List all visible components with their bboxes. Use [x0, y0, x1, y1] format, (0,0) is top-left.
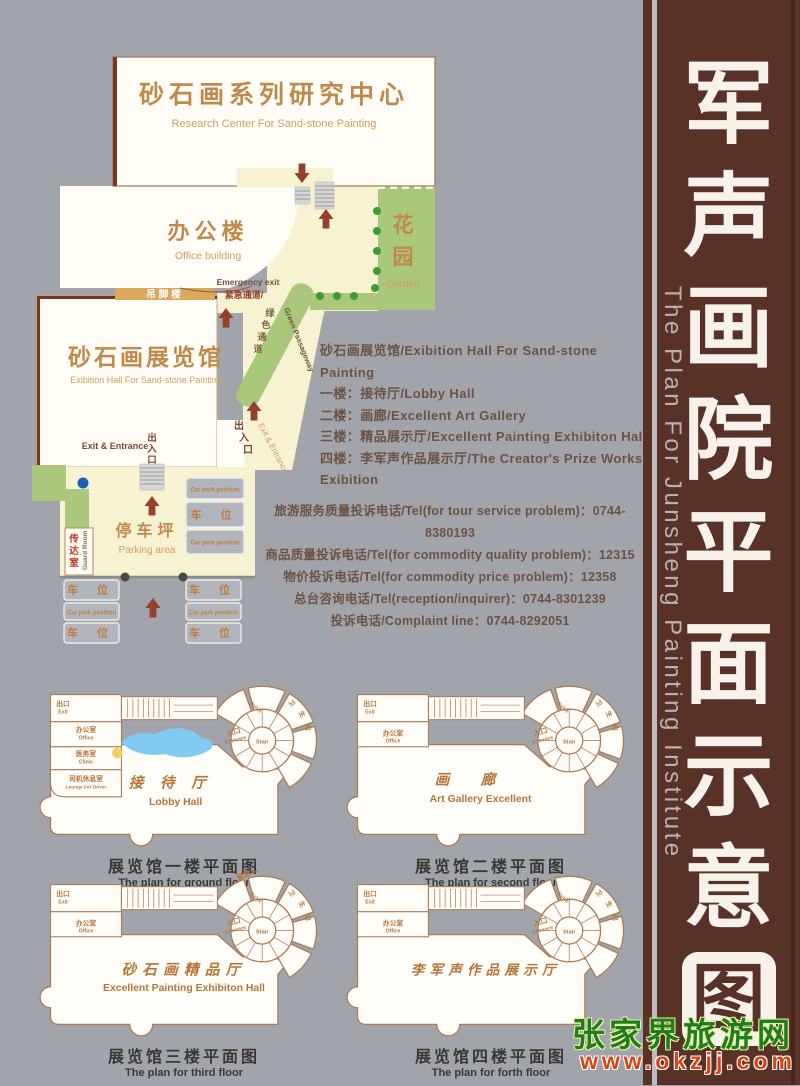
clinic-label-cn: 医务室 — [76, 749, 97, 758]
lounge-label-en: Lounge For Driver — [66, 784, 107, 789]
phone-line: 物价投诉电话/Tel(for commodity price problem)：… — [256, 566, 644, 588]
svg-text:入: 入 — [146, 444, 157, 455]
svg-text:Car park position: Car park position — [190, 541, 240, 547]
watermark-url[interactable]: www.okzjj.com — [580, 1048, 796, 1075]
sidebar-title-char: 院 — [684, 392, 774, 490]
floors-info-line: 一楼：接待厅/Lobby Hall — [320, 383, 650, 405]
exit-label-cn: 出口 — [363, 699, 377, 708]
blue-marker-dot — [78, 478, 89, 489]
hall-name-en: Lobby Hall — [149, 797, 202, 808]
sidebar-title-char: 画 — [684, 280, 774, 378]
svg-text:绿: 绿 — [265, 307, 275, 318]
phone-line: 商品质量投诉电话/Tel(for commodity quality probl… — [256, 544, 644, 566]
stair-label: Stair — [256, 930, 269, 936]
sidebar-title-char: 示 — [684, 728, 774, 826]
clinic-label-en: Clinic — [79, 759, 93, 765]
phone-line: 总台咨询电话/Tel(reception/inquirer)：0744-8301… — [256, 588, 644, 610]
lounge-label-cn: 司机休息室 — [69, 774, 103, 783]
gate-post — [179, 573, 188, 582]
svg-text:达: 达 — [69, 545, 79, 557]
hall-name-en: Excellent Painting Exhibiton Hall — [103, 983, 265, 994]
emergency-exit-label-en: Emergency exit — [217, 277, 280, 287]
sidebar-title-char: 意 — [684, 840, 774, 938]
emergency-exit-label-cn: 紧急通道/ — [225, 289, 264, 300]
parking-green-strip — [32, 465, 66, 501]
exhibition-hall-title-en: Exibition Hall For Sand-stone Painting — [70, 375, 222, 385]
svg-text:Car park position: Car park position — [190, 488, 240, 494]
svg-text:出: 出 — [147, 432, 157, 444]
plan-caption-en: The plan for third floor — [38, 1067, 330, 1079]
svg-text:传: 传 — [68, 533, 79, 545]
floors-info-line: 二楼：画廊/Excellent Art Gallery — [320, 405, 650, 427]
office-label-cn: 办公室 — [76, 725, 97, 734]
exit-label-en: Exit — [58, 709, 68, 715]
floor-plan-2: 出口 Exit 办公室 Office 入口 Entrance Stair Toi… — [345, 680, 637, 889]
sidebar-title-char: 面 — [684, 616, 774, 714]
office-label-en: Office — [79, 929, 94, 935]
floors-info-line: 四楼：李军声作品展示厅/The Creator's Prize Works Ex… — [320, 448, 650, 491]
svg-text:车 位: 车 位 — [190, 508, 239, 522]
sidebar-title-char: 平 — [684, 504, 774, 602]
office-label-en: Office building — [175, 250, 242, 262]
sidebar-left-stripe — [643, 0, 652, 1085]
stair-label: Stair — [256, 740, 269, 746]
diaojiaolou-label: 吊脚楼 — [146, 289, 184, 301]
hall-name-cn: 李军声作品展示厅 — [411, 962, 561, 978]
phone-line: 投诉电话/Complaint line：0744-8292051 — [256, 610, 644, 632]
parking-label-en: Parking area — [119, 545, 176, 556]
office-label-en: Office — [386, 929, 401, 935]
floor-plan-3: 紧急出口 出口 Exit 办公室 Office 入口 Entrance Stai… — [38, 870, 330, 1079]
svg-text:车 位: 车 位 — [67, 583, 116, 597]
exit-label-cn: 出口 — [56, 699, 70, 708]
floors-info-line: 砂石画展览馆/Exibition Hall For Sand-stone Pai… — [320, 340, 650, 383]
research-center-title-en: Research Center For Sand-stone Painting — [172, 118, 377, 130]
stair-label: Stair — [563, 930, 576, 936]
svg-text:车 位: 车 位 — [67, 626, 116, 640]
sidebar-title-char: 声 — [684, 168, 774, 266]
plan-caption-cn: 展览馆三楼平面图 — [38, 1043, 330, 1067]
office-label-cn: 办公室 — [383, 728, 404, 737]
phones-block: 旅游服务质量投诉电话/Tel(for tour service problem)… — [256, 500, 644, 632]
office-label-en: Office — [386, 739, 401, 745]
svg-text:口: 口 — [243, 445, 253, 456]
research-center-title-cn: 砂石画系列研究中心 — [139, 80, 409, 109]
svg-text:Car park position: Car park position — [189, 611, 239, 617]
svg-text:室: 室 — [69, 557, 79, 569]
office-label-cn: 办公楼 — [167, 219, 248, 244]
guard-room-label-en: Guard Room — [82, 530, 89, 570]
arrow-up-icon — [146, 598, 161, 618]
guard-room-label-cn: 传 达 室 — [68, 533, 79, 569]
svg-text:通: 通 — [257, 331, 266, 342]
exit-label-en: Exit — [365, 709, 375, 715]
hall-name-cn: 画廊 — [435, 771, 527, 788]
exit-label-en: Exit — [58, 899, 68, 905]
stair-label: Stair — [563, 740, 576, 746]
svg-text:车 位: 车 位 — [189, 583, 238, 597]
office-label-cn: 办公室 — [76, 918, 97, 927]
hall-name-en: Art Gallery Excellent — [430, 794, 532, 805]
svg-text:入: 入 — [239, 432, 249, 444]
gate-post — [121, 573, 130, 582]
garden-label-cn2: 园 — [393, 246, 414, 269]
main-exit-label-en: Exit & Entrance — [82, 441, 149, 451]
sidebar-title-char: 军 — [684, 56, 774, 154]
hall-name-cn: 接待厅 — [129, 774, 223, 791]
garden-label-en: Garden — [386, 279, 419, 290]
svg-text:Car park position: Car park position — [67, 611, 117, 617]
svg-text:色: 色 — [261, 319, 270, 330]
garden-band — [310, 293, 435, 310]
parking-green-strip — [65, 489, 89, 531]
sidebar-title-vertical: 军 声 画 院 平 面 示 意 图 — [657, 56, 800, 1046]
garden-label-cn1: 花 — [393, 213, 414, 237]
office-label-en: Office — [79, 735, 94, 741]
floors-info-line: 三楼：精品展示厅/Excellent Painting Exhibiton Ha… — [320, 426, 650, 448]
main-exit-label-cn: 出 入 口 — [146, 432, 157, 466]
svg-text:出: 出 — [234, 419, 244, 432]
svg-text:车 位: 车 位 — [189, 626, 238, 640]
hall-name-cn: 砂石画精品厅 — [121, 961, 246, 978]
phone-line: 旅游服务质量投诉电话/Tel(for tour service problem)… — [256, 500, 644, 544]
parking-label-cn: 停车坪 — [115, 521, 178, 540]
floors-info-block: 砂石画展览馆/Exibition Hall For Sand-stone Pai… — [320, 340, 650, 491]
exit-label-cn: 出口 — [56, 889, 70, 898]
lounge-room — [51, 770, 122, 797]
entrance-stairs — [140, 464, 164, 490]
exhibition-hall-title-cn: 砂石画展览馆 — [68, 344, 224, 370]
exit-label-cn: 出口 — [363, 889, 377, 898]
svg-text:道: 道 — [253, 343, 262, 354]
office-label-cn: 办公室 — [383, 918, 404, 927]
exit-label-en: Exit — [365, 899, 375, 905]
yellow-marker — [112, 748, 122, 758]
floor-plan-1: 出口 Exit 办公室 Office 医务室 Clinic 司机休息室 Loun… — [38, 680, 330, 889]
